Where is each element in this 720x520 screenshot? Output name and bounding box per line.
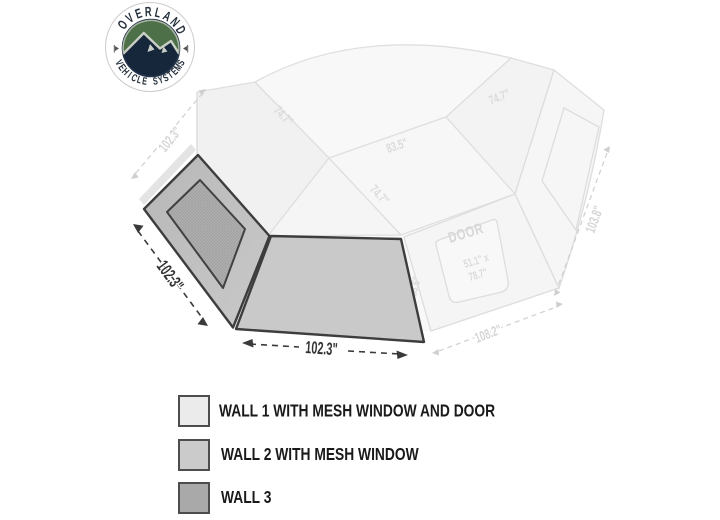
svg-text:WALL 3: WALL 3: [221, 489, 272, 508]
svg-text:108.2": 108.2": [472, 321, 504, 346]
svg-text:103.8": 103.8": [582, 204, 607, 236]
svg-text:102.3": 102.3": [305, 339, 339, 360]
svg-text:102.3": 102.3": [155, 123, 185, 155]
svg-text:R: R: [145, 5, 153, 19]
svg-text:WALL 1 WITH MESH WINDOW AND DO: WALL 1 WITH MESH WINDOW AND DOOR: [219, 402, 496, 421]
svg-text:WALL 2 WITH MESH WINDOW: WALL 2 WITH MESH WINDOW: [221, 446, 419, 465]
svg-text:102.3": 102.3": [152, 258, 187, 295]
